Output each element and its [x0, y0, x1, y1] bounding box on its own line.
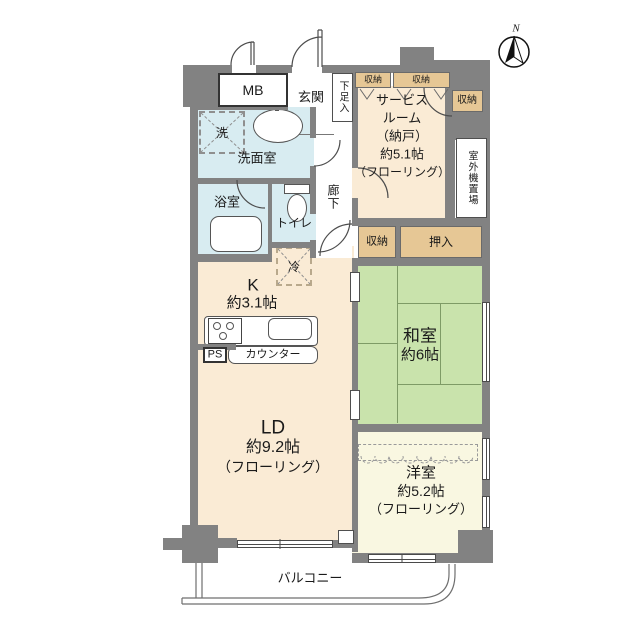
balcony-railing: [182, 563, 202, 604]
door-arc: [292, 30, 322, 67]
floor-plan: N MB 玄関 下足入 洗 洗面室 浴室 トイレ 廊下 収納 収納 収納 室外機…: [0, 0, 640, 640]
step-box: [338, 530, 354, 544]
door-arc: [231, 42, 254, 65]
western-room-floor-label: （フローリング）: [369, 503, 473, 516]
tatami-line: [397, 265, 398, 423]
bathtub-icon: [210, 216, 262, 252]
bathroom-label: 浴室: [214, 196, 240, 209]
refrigerator-label: 冷: [288, 261, 300, 273]
wall: [445, 140, 455, 218]
service-room-label-1: サービス: [376, 94, 428, 107]
stove-burner-icon: [213, 322, 221, 330]
tatami-line: [356, 343, 397, 344]
wall: [400, 47, 434, 73]
shoe-cabinet-label: 下足入: [337, 81, 347, 114]
closet-hanger-area: [358, 444, 478, 461]
wall: [163, 538, 182, 550]
washroom-label: 洗面室: [237, 152, 276, 165]
corridor-label: 廊下: [327, 184, 339, 210]
service-room-label-2: ルーム: [383, 112, 422, 125]
window: [482, 438, 490, 480]
counter-label: カウンター: [246, 350, 301, 361]
living-dining-size-label: 約9.2帖: [246, 440, 300, 456]
meter-box-label: MB: [243, 83, 264, 97]
japanese-room-size-label: 約6帖: [401, 348, 439, 363]
compass-icon: [499, 36, 529, 67]
door-arc: [314, 140, 340, 166]
wall: [218, 540, 237, 548]
washing-machine-label: 洗: [216, 127, 228, 139]
tatami-line: [398, 384, 481, 385]
corridor-floor: [316, 218, 352, 258]
kitchen-living-floor: [196, 246, 354, 542]
entrance-label: 玄関: [298, 91, 324, 104]
oshiire-label: 押入: [429, 236, 453, 248]
storage-mid-label: 収納: [366, 237, 388, 248]
compass-north-label: N: [512, 24, 519, 35]
sliding-door-marker: [350, 390, 360, 420]
storage-top-right-label: 収納: [412, 76, 430, 85]
window: [237, 540, 333, 548]
stove-burner-icon: [219, 332, 227, 340]
washbasin-icon: [253, 109, 303, 143]
wall: [183, 65, 218, 107]
stove-icon: [208, 318, 242, 344]
wall: [310, 166, 316, 214]
kitchen-name-label: K: [247, 277, 258, 294]
kitchen-size-label: 約3.1帖: [227, 296, 278, 311]
outdoor-unit-label: 室外機置場: [466, 151, 476, 206]
wall: [310, 107, 316, 138]
western-room-name-label: 洋室: [406, 466, 436, 481]
wall: [352, 198, 358, 220]
stove-burner-icon: [226, 322, 234, 330]
storage-right-label: 収納: [457, 96, 477, 106]
wall: [352, 258, 490, 266]
toilet-tank-icon: [284, 184, 310, 194]
window: [482, 302, 490, 382]
wall: [218, 65, 232, 73]
pipe-space-label: PS: [208, 350, 223, 361]
living-dining-floor-label: （フローリング）: [217, 460, 329, 474]
wall: [182, 525, 218, 563]
living-dining-name-label: LD: [261, 419, 285, 438]
storage-top-left-label: 収納: [364, 76, 382, 85]
western-room-size-label: 約5.2帖: [397, 484, 444, 498]
wall: [190, 178, 316, 184]
service-room-label-3: （納戸）: [376, 130, 428, 143]
window: [368, 554, 436, 563]
wall: [458, 530, 493, 563]
sink-icon: [268, 318, 312, 340]
wall: [256, 65, 292, 73]
wall: [268, 242, 316, 248]
window: [482, 496, 490, 528]
wall: [352, 424, 490, 432]
toilet-label: トイレ: [276, 217, 312, 229]
japanese-room-name-label: 和室: [403, 328, 437, 345]
wall: [190, 254, 272, 262]
wall: [190, 107, 198, 527]
tatami-line: [440, 304, 441, 384]
wall: [352, 218, 490, 226]
service-room-label-4: 約5.1帖: [380, 148, 424, 161]
sliding-door-marker: [350, 272, 360, 302]
balcony-label: バルコニー: [278, 572, 343, 585]
service-room-label-5: （フローリング）: [354, 166, 450, 178]
